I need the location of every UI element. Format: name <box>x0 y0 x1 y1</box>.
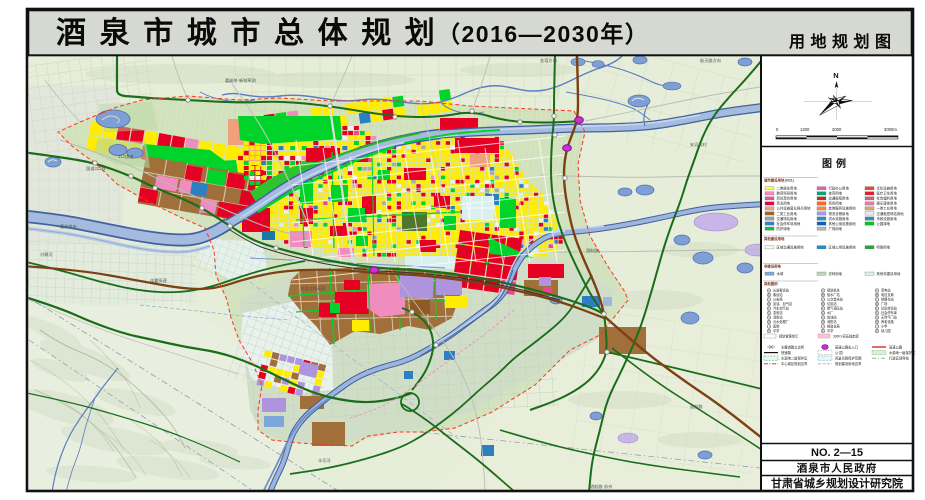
svg-text:规划管理单元: 规划管理单元 <box>779 334 799 339</box>
svg-text:加油站: 加油站 <box>827 315 837 320</box>
svg-text:商住混合用地: 商住混合用地 <box>777 196 798 201</box>
svg-text:水域: 水域 <box>777 271 784 276</box>
svg-text:交通枢纽用地: 交通枢纽用地 <box>829 196 850 201</box>
svg-text:行政办公用地: 行政办公用地 <box>829 186 850 191</box>
svg-text:天然气门站: 天然气门站 <box>881 315 898 320</box>
svg-text:养老设施: 养老设施 <box>881 319 895 324</box>
svg-text:给水厂站: 给水厂站 <box>827 292 841 297</box>
svg-text:中学: 中学 <box>827 328 833 333</box>
svg-text:一类工业用地: 一类工业用地 <box>877 206 898 211</box>
svg-text:体育用地: 体育用地 <box>829 191 843 196</box>
svg-text:国道312线: 国道312线 <box>86 165 106 172</box>
svg-text:330KV高压线走廊: 330KV高压线走廊 <box>833 334 859 339</box>
svg-text:C: C <box>876 299 878 302</box>
svg-text:公园绿地: 公园绿地 <box>877 221 891 226</box>
svg-text:H: H <box>768 321 770 324</box>
svg-text:变电站: 变电站 <box>773 310 783 315</box>
svg-text:燃气调压站: 燃气调压站 <box>827 306 844 311</box>
svg-text:高速公路出入口: 高速公路出入口 <box>835 344 858 349</box>
svg-text:主要道路立交桥: 主要道路立交桥 <box>781 344 805 349</box>
svg-text:D: D <box>768 303 770 306</box>
svg-text:酒航路: 酒航路 <box>690 403 703 410</box>
svg-text:NO. 2—15: NO. 2—15 <box>811 447 863 459</box>
svg-text:污水处理厂: 污水处理厂 <box>773 319 789 324</box>
svg-text:H: H <box>876 321 878 324</box>
svg-text:G: G <box>822 317 824 320</box>
svg-text:规划机关: 规划机关 <box>827 288 841 293</box>
svg-text:汽车加气站: 汽车加气站 <box>773 306 790 311</box>
svg-text:二类工业用地: 二类工业用地 <box>777 211 798 216</box>
svg-text:（2016—2030年）: （2016—2030年） <box>437 21 649 47</box>
svg-text:垃圾站: 垃圾站 <box>827 301 837 306</box>
svg-text:安远沟村: 安远沟村 <box>690 141 708 148</box>
svg-text:物流仓储用地: 物流仓储用地 <box>829 211 850 216</box>
svg-text:公共设施营业网点用地: 公共设施营业网点用地 <box>777 206 812 211</box>
svg-text:幼儿园: 幼儿园 <box>881 328 891 333</box>
svg-text:消防站: 消防站 <box>773 315 783 320</box>
svg-text:长途客运站: 长途客运站 <box>773 288 790 293</box>
svg-text:社会停车库: 社会停车库 <box>881 310 898 315</box>
svg-text:非建设用地: 非建设用地 <box>764 264 782 269</box>
svg-text:其他服务设施用地: 其他服务设施用地 <box>829 206 857 211</box>
svg-text:交通场站用地: 交通场站用地 <box>777 216 798 221</box>
svg-text:医疗卫生用地: 医疗卫生用地 <box>877 191 898 196</box>
svg-text:H: H <box>822 321 824 324</box>
svg-text:C: C <box>768 299 770 302</box>
svg-text:水厂: 水厂 <box>827 310 833 315</box>
svg-text:中学: 中学 <box>773 328 779 333</box>
svg-text:医院: 医院 <box>773 324 780 329</box>
svg-text:高速公路: 高速公路 <box>889 344 903 349</box>
svg-text:垃圾转运站: 垃圾转运站 <box>881 306 898 311</box>
svg-text:交通枢纽场站用地: 交通枢纽场站用地 <box>877 211 905 216</box>
svg-text:教育科研用地: 教育科研用地 <box>777 191 798 196</box>
svg-text:讨赖河: 讨赖河 <box>40 251 53 258</box>
svg-text:酒嘉绕城高速: 酒嘉绕城高速 <box>300 285 326 292</box>
svg-text:娱乐康体用地: 娱乐康体用地 <box>877 201 898 206</box>
svg-text:加油、加气站: 加油、加气站 <box>773 301 793 306</box>
svg-text:G: G <box>768 317 770 320</box>
svg-text:甘肃省城乡规划设计研究院: 甘肃省城乡规划设计研究院 <box>771 476 903 490</box>
svg-text:酒泉市人民政府: 酒泉市人民政府 <box>797 462 878 475</box>
svg-text:文化设施用地: 文化设施用地 <box>877 186 898 191</box>
svg-text:防护绿地: 防护绿地 <box>777 226 791 231</box>
svg-text:D: D <box>876 303 878 306</box>
svg-text:电信支局: 电信支局 <box>881 292 894 297</box>
svg-text:D: D <box>822 303 824 306</box>
svg-text:行政区划界线: 行政区划界线 <box>889 356 909 361</box>
svg-text:社会停车场用地: 社会停车场用地 <box>777 221 801 226</box>
svg-text:社会福利用地: 社会福利用地 <box>877 196 898 201</box>
svg-text:连霍高速: 连霍高速 <box>150 277 168 284</box>
svg-text:商业用地: 商业用地 <box>777 201 791 206</box>
svg-text:N: N <box>833 71 838 80</box>
svg-text:1200: 1200 <box>800 127 810 132</box>
svg-text:广场用地: 广场用地 <box>829 226 843 231</box>
svg-text:广场: 广场 <box>881 301 887 306</box>
svg-text:用地规划图: 用地规划图 <box>789 32 897 51</box>
svg-text:区域交通设施用地: 区域交通设施用地 <box>777 245 805 250</box>
svg-text:图例: 图例 <box>822 157 850 170</box>
svg-text:特殊用地: 特殊用地 <box>877 245 891 250</box>
svg-text:市政设施用地: 市政设施用地 <box>877 216 898 221</box>
svg-text:变电站: 变电站 <box>881 288 891 293</box>
svg-text:丰乐河: 丰乐河 <box>318 457 331 464</box>
svg-text:客运站: 客运站 <box>773 292 783 297</box>
svg-text:铁路车站: 铁路车站 <box>881 297 895 302</box>
svg-text:快速路: 快速路 <box>781 350 792 355</box>
svg-text:嘉峪关·新城草湖: 嘉峪关·新城草湖 <box>225 77 256 84</box>
svg-text:酒泉市城市总体规划: 酒泉市城市总体规划 <box>56 16 448 50</box>
svg-text:312国道: 312国道 <box>118 153 134 160</box>
svg-text:小学: 小学 <box>881 324 887 329</box>
svg-text:3000m: 3000m <box>884 127 897 132</box>
svg-text:其他非建设用地: 其他非建设用地 <box>877 271 901 276</box>
svg-text:二类居住用地: 二类居住用地 <box>777 186 798 191</box>
svg-text:邮政支局: 邮政支局 <box>827 324 840 329</box>
svg-text:水源地二级保护区: 水源地二级保护区 <box>781 356 808 361</box>
svg-text:嘉峪关市: 嘉峪关市 <box>60 223 77 230</box>
svg-text:区域公用设施用地: 区域公用设施用地 <box>829 245 857 250</box>
svg-text:金塔方向: 金塔方向 <box>540 57 557 64</box>
svg-text:中心城区规划边界: 中心城区规划边界 <box>781 361 808 366</box>
svg-text:城市建设用地 (R21): 城市建设用地 (R21) <box>764 178 794 183</box>
svg-text:G: G <box>876 317 878 320</box>
svg-text:风景名胜保护范围: 风景名胜保护范围 <box>835 356 862 361</box>
svg-text:供水设施用地: 供水设施用地 <box>829 216 850 221</box>
svg-text:其他图例: 其他图例 <box>763 281 778 286</box>
svg-text:规划建设用地边界: 规划建设用地边界 <box>835 361 862 366</box>
svg-text:公安局: 公安局 <box>773 297 783 302</box>
svg-text:农林用地: 农林用地 <box>829 271 843 276</box>
svg-text:2000: 2000 <box>832 127 842 132</box>
svg-text:公 园: 公 园 <box>835 350 843 355</box>
svg-text:酒航路·苏州: 酒航路·苏州 <box>590 483 612 490</box>
svg-text:其他建设用地: 其他建设用地 <box>763 236 785 241</box>
svg-text:酒航路: 酒航路 <box>586 247 599 254</box>
svg-text:其他公用设施用地: 其他公用设施用地 <box>829 221 857 226</box>
svg-text:消防站: 消防站 <box>827 319 837 324</box>
svg-text:C: C <box>822 299 824 302</box>
svg-text:公交首末站: 公交首末站 <box>827 297 844 302</box>
svg-text:航天路方向: 航天路方向 <box>700 57 721 64</box>
svg-text:商务用地: 商务用地 <box>829 201 843 206</box>
